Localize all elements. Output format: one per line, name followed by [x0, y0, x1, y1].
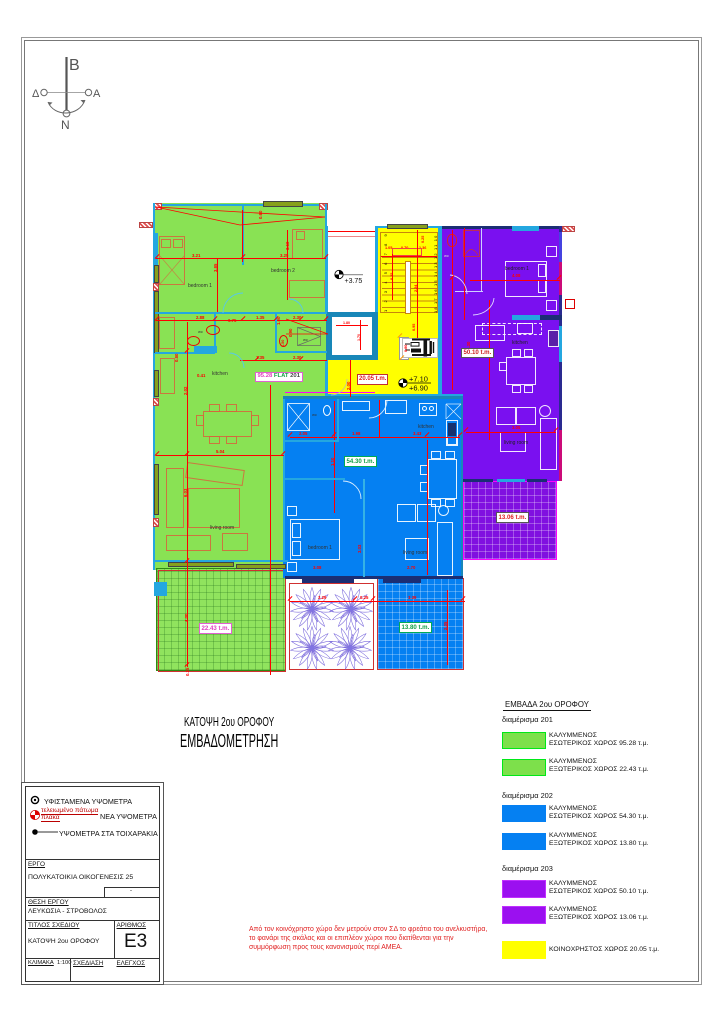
svg-text:B: B: [69, 57, 80, 74]
svg-text:N: N: [61, 118, 70, 132]
svg-text:+3.75: +3.75: [345, 278, 363, 285]
svg-text:Δ: Δ: [32, 88, 40, 100]
svg-text:+7.10: +7.10: [409, 375, 428, 384]
svg-text:+6.90: +6.90: [409, 384, 428, 393]
svg-text:A: A: [93, 88, 101, 100]
